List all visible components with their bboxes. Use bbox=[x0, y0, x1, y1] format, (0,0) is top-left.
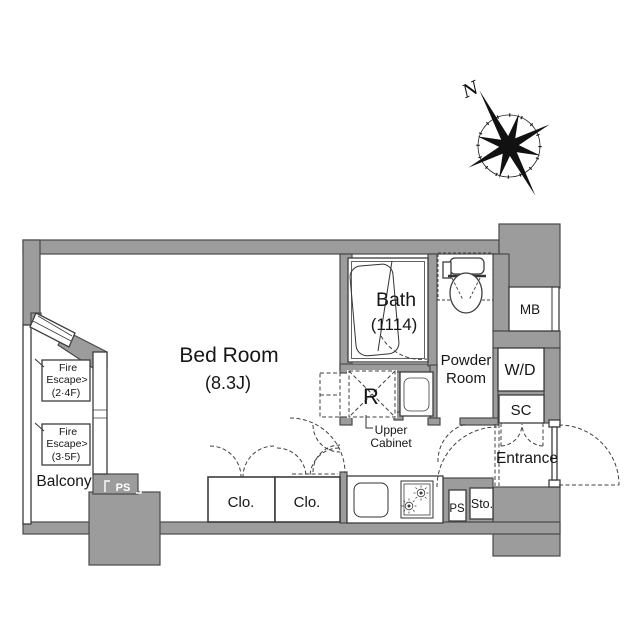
closet2-door-arcs bbox=[277, 448, 339, 477]
bedroom-balcony-window bbox=[93, 352, 107, 474]
entrance-label: Entrance bbox=[496, 450, 558, 467]
wall-opening-segment bbox=[340, 417, 352, 425]
refrigerator-label: R bbox=[363, 384, 379, 409]
fire-escape-upper-floors: (2·4F) bbox=[52, 387, 81, 399]
washer-pan-outer bbox=[400, 372, 433, 416]
diagonal-window bbox=[30, 313, 75, 347]
upper-cabinet-label-2: Cabinet bbox=[370, 436, 412, 450]
closet1-label: Clo. bbox=[228, 494, 255, 511]
upper-cabinet-label-1: Upper bbox=[375, 423, 408, 437]
closet2-label: Clo. bbox=[294, 494, 321, 511]
compass-rose-icon: N bbox=[439, 69, 576, 217]
bedroom-size-label: (8.3J) bbox=[205, 373, 251, 393]
wall-bottomleft-block bbox=[89, 492, 160, 565]
compass-star bbox=[439, 69, 576, 217]
bath-size-label: (1114) bbox=[371, 315, 418, 334]
fire-escape-lower-line2: Escape> bbox=[46, 438, 87, 450]
fire-escape-upper-line1: Fire bbox=[59, 362, 77, 374]
bath-name-label: Bath bbox=[376, 289, 416, 311]
powder-room-label-1: Powder bbox=[441, 352, 492, 369]
wall-left-of-wd bbox=[493, 348, 498, 423]
shoe-closet-door-arcs bbox=[501, 423, 543, 446]
kitchen-doorway-arc bbox=[290, 418, 345, 473]
pipe-shaft-left-label: PS bbox=[116, 482, 131, 494]
wall-right-of-powder bbox=[493, 254, 509, 331]
fire-escape-upper-line2: Escape> bbox=[46, 374, 87, 386]
balcony-railing bbox=[23, 325, 31, 524]
wall-left bbox=[23, 240, 40, 325]
meter-box-label: MB bbox=[520, 302, 540, 317]
entrance-door-swing-arc bbox=[559, 425, 619, 485]
pipe-shaft-right-label: PS bbox=[449, 503, 465, 515]
floor-plan-drawing: Bed Room (8.3J) Bath (1114) Powder Room … bbox=[0, 0, 640, 640]
storage-label: Sto. bbox=[471, 497, 493, 511]
shoe-closet-label: SC bbox=[511, 402, 532, 419]
entrance-door-post-bottom bbox=[549, 480, 560, 487]
balcony-label: Balcony bbox=[36, 473, 91, 490]
wall-kitchen-left bbox=[340, 472, 347, 523]
wall-powder-bottom-a bbox=[460, 418, 498, 425]
washer-dryer-label: W/D bbox=[504, 362, 535, 379]
powder-room-label-2: Room bbox=[446, 370, 486, 387]
fire-escape-lower-line1: Fire bbox=[59, 426, 77, 438]
compass-north-label: N bbox=[458, 77, 483, 104]
bedroom-name-label: Bed Room bbox=[179, 344, 278, 367]
powder-door-arc bbox=[438, 424, 466, 462]
closet1-door-arcs bbox=[210, 446, 274, 477]
toilet-tank bbox=[450, 258, 484, 274]
toilet-bowl bbox=[450, 273, 482, 313]
floor-plan-page: Bed Room (8.3J) Bath (1114) Powder Room … bbox=[0, 0, 640, 640]
wall-top bbox=[23, 240, 499, 254]
entrance-door-post-top bbox=[549, 420, 560, 427]
wall-mb-wd-band bbox=[493, 331, 560, 348]
wall-bath-powder-divider bbox=[428, 254, 437, 366]
wall-right-edge bbox=[544, 348, 560, 423]
wall-powder-bottom-b bbox=[428, 418, 440, 425]
fire-escape-lower-floors: (3·5F) bbox=[52, 451, 81, 463]
